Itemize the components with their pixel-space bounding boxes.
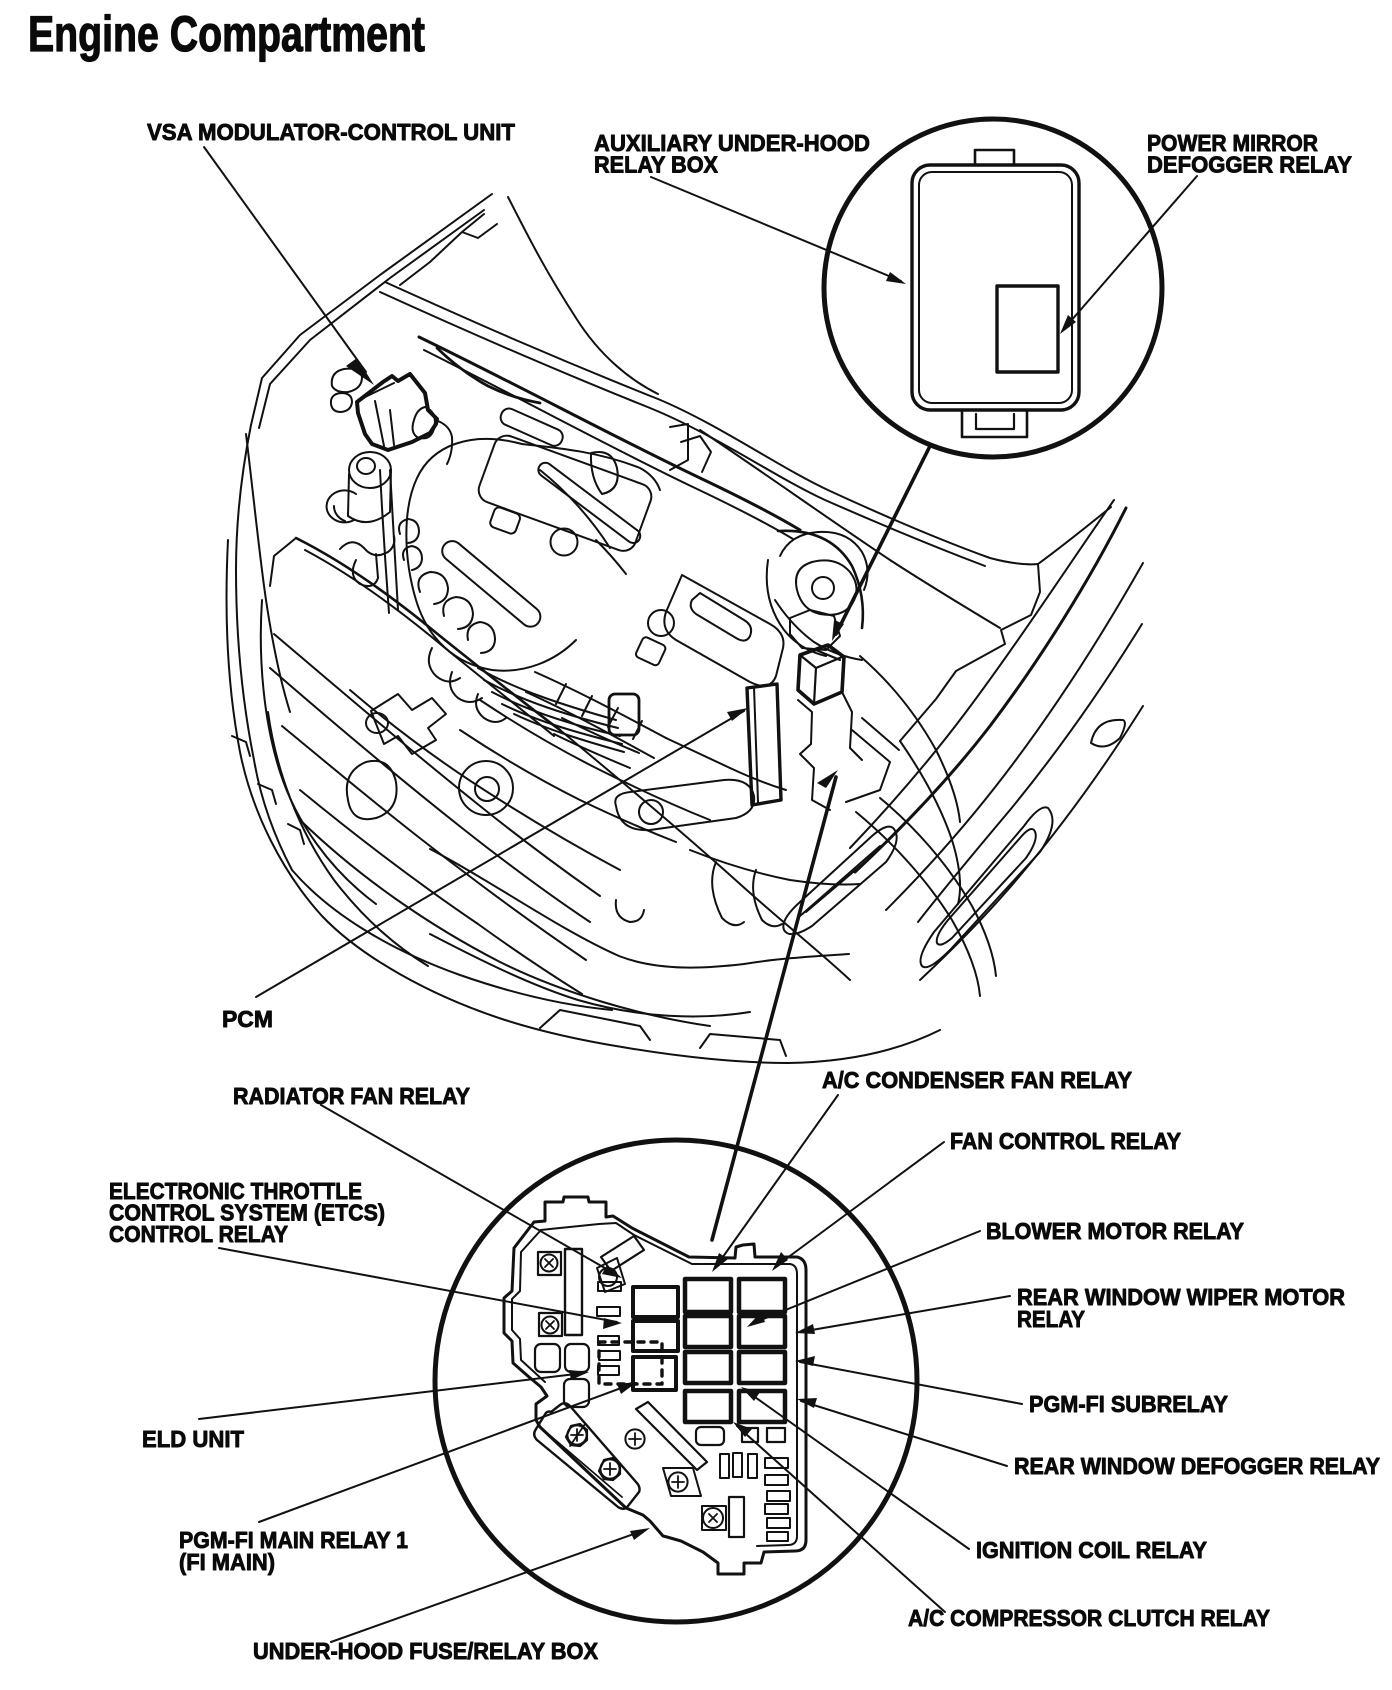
- svg-text:IGNITION COIL RELAY: IGNITION COIL RELAY: [976, 1537, 1207, 1563]
- svg-text:REAR WINDOW DEFOGGER RELAY: REAR WINDOW DEFOGGER RELAY: [1014, 1453, 1380, 1479]
- svg-text:ELD UNIT: ELD UNIT: [142, 1426, 245, 1452]
- svg-text:VSA MODULATOR-CONTROL UNIT: VSA MODULATOR-CONTROL UNIT: [147, 119, 516, 145]
- svg-text:A/C CONDENSER FAN RELAY: A/C CONDENSER FAN RELAY: [822, 1067, 1132, 1093]
- svg-text:BLOWER MOTOR RELAY: BLOWER MOTOR RELAY: [986, 1218, 1244, 1244]
- svg-text:(FI MAIN): (FI MAIN): [179, 1549, 275, 1575]
- svg-text:Engine Compartment: Engine Compartment: [28, 6, 425, 62]
- svg-text:CONTROL RELAY: CONTROL RELAY: [109, 1221, 288, 1247]
- svg-text:PGM-FI SUBRELAY: PGM-FI SUBRELAY: [1029, 1391, 1228, 1417]
- svg-text:RADIATOR FAN RELAY: RADIATOR FAN RELAY: [233, 1083, 470, 1109]
- svg-text:FAN CONTROL RELAY: FAN CONTROL RELAY: [950, 1128, 1181, 1154]
- svg-text:RELAY: RELAY: [1017, 1306, 1085, 1332]
- svg-text:PCM: PCM: [222, 1006, 273, 1032]
- svg-text:DEFOGGER RELAY: DEFOGGER RELAY: [1147, 152, 1352, 178]
- svg-text:UNDER-HOOD FUSE/RELAY BOX: UNDER-HOOD FUSE/RELAY BOX: [253, 1638, 598, 1664]
- svg-text:A/C COMPRESSOR CLUTCH RELAY: A/C COMPRESSOR CLUTCH RELAY: [908, 1605, 1270, 1631]
- svg-text:RELAY BOX: RELAY BOX: [594, 152, 718, 178]
